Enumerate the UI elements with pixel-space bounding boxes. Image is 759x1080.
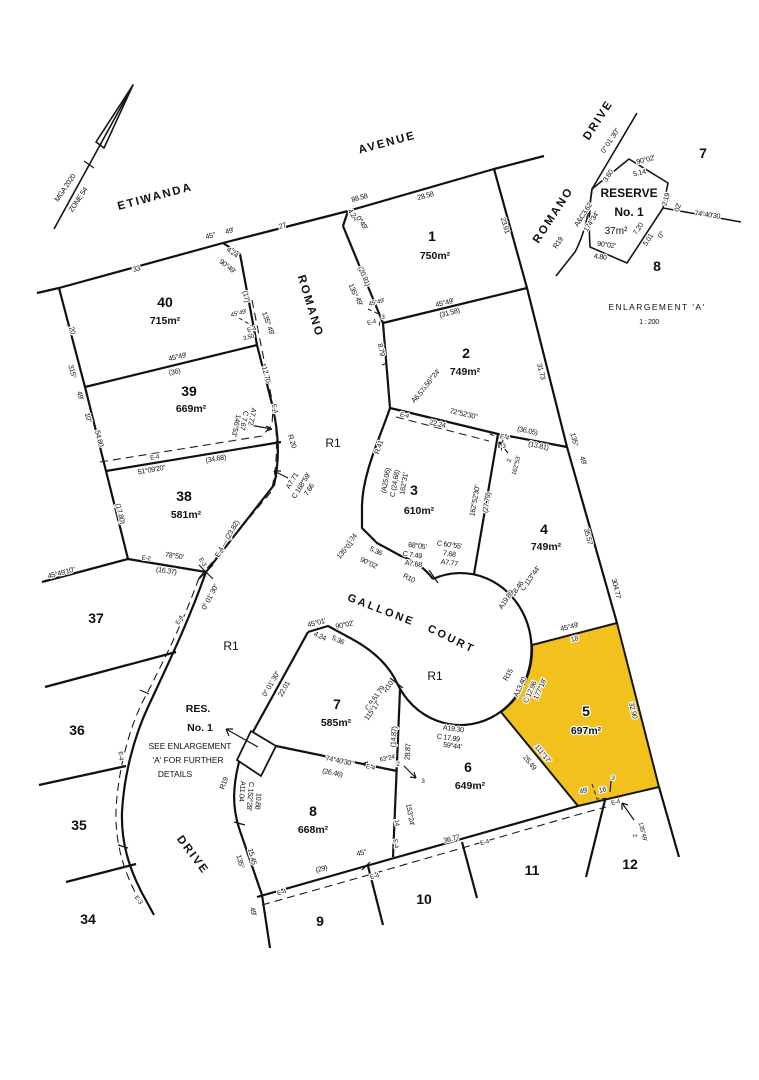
svg-text:(14.87): (14.87): [388, 726, 398, 747]
svg-text:6: 6: [464, 759, 472, 775]
svg-text:36: 36: [69, 722, 85, 738]
svg-text:749m²: 749m²: [531, 541, 562, 553]
svg-text:715m²: 715m²: [150, 315, 181, 327]
svg-text:11: 11: [525, 862, 540, 878]
svg-text:35: 35: [71, 817, 87, 833]
svg-text:37m²: 37m²: [605, 226, 628, 237]
svg-text:ENLARGEMENT 'A': ENLARGEMENT 'A': [608, 302, 705, 312]
svg-text:No. 1: No. 1: [187, 722, 213, 734]
svg-text:8: 8: [309, 803, 317, 819]
svg-text:697m²: 697m²: [571, 725, 602, 737]
svg-text:R1: R1: [325, 436, 341, 450]
svg-text:DETAILS: DETAILS: [158, 769, 193, 779]
svg-text:2: 2: [462, 345, 470, 361]
svg-text:10.88: 10.88: [253, 793, 263, 811]
svg-text:RES.: RES.: [186, 703, 211, 715]
svg-text:R1: R1: [427, 669, 443, 683]
svg-text:SEE ENLARGEMENT: SEE ENLARGEMENT: [149, 741, 232, 751]
svg-text:668m²: 668m²: [298, 824, 329, 836]
svg-text:4.80: 4.80: [593, 251, 607, 262]
svg-text:No. 1: No. 1: [614, 205, 644, 219]
svg-text:40: 40: [157, 294, 173, 310]
svg-text:610m²: 610m²: [404, 505, 435, 517]
svg-text:3: 3: [410, 482, 418, 498]
svg-text:7: 7: [699, 145, 707, 161]
svg-text:10: 10: [416, 891, 432, 907]
svg-text:581m²: 581m²: [171, 509, 202, 521]
svg-text:750m²: 750m²: [420, 250, 451, 262]
svg-text:585m²: 585m²: [321, 717, 352, 729]
svg-text:'A' FOR FURTHER: 'A' FOR FURTHER: [153, 755, 224, 765]
svg-text:7: 7: [333, 696, 341, 712]
svg-text:38: 38: [176, 488, 192, 504]
svg-text:1: 1: [428, 228, 436, 244]
svg-text:12: 12: [622, 856, 638, 872]
svg-text:669m²: 669m²: [176, 403, 207, 415]
svg-text:5: 5: [582, 703, 590, 719]
svg-text:37: 37: [88, 610, 104, 626]
svg-text:39: 39: [181, 383, 197, 399]
svg-text:RESERVE: RESERVE: [600, 186, 657, 200]
svg-text:E-4: E-4: [117, 751, 125, 761]
svg-text:E-2: E-2: [141, 554, 152, 562]
svg-text:34: 34: [80, 911, 96, 927]
svg-text:4: 4: [540, 521, 548, 537]
svg-text:749m²: 749m²: [450, 366, 481, 378]
svg-text:28.87: 28.87: [402, 743, 412, 760]
svg-text:9: 9: [316, 913, 324, 929]
svg-text:1 : 200: 1 : 200: [639, 317, 659, 326]
svg-text:R1: R1: [223, 639, 239, 653]
svg-text:649m²: 649m²: [455, 780, 486, 792]
svg-text:8: 8: [653, 258, 661, 274]
